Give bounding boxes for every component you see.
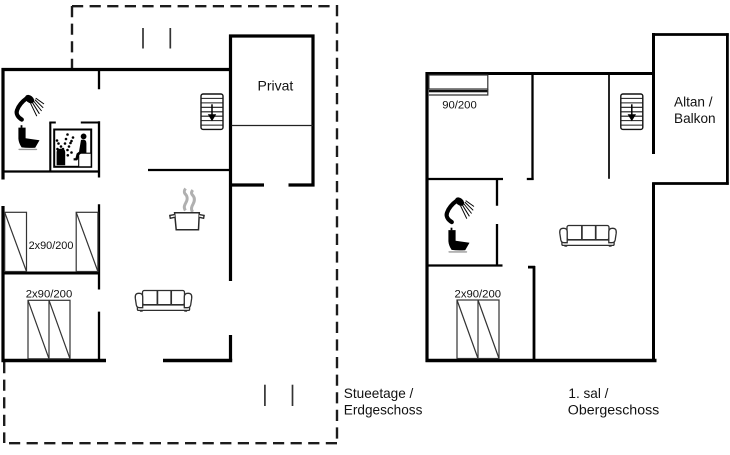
svg-text:Stueetage /: Stueetage /	[344, 386, 414, 401]
svg-text:Altan /: Altan /	[674, 95, 713, 110]
svg-text:Obergeschoss: Obergeschoss	[568, 403, 659, 419]
svg-text:1. sal /: 1. sal /	[568, 386, 608, 401]
svg-text:Balkon: Balkon	[674, 111, 716, 126]
svg-text:2x90/200: 2x90/200	[29, 240, 74, 252]
svg-text:2x90/200: 2x90/200	[26, 288, 72, 300]
svg-text:Erdgeschoss: Erdgeschoss	[344, 403, 423, 418]
svg-text:2x90/200: 2x90/200	[455, 288, 501, 300]
svg-text:Privat: Privat	[258, 77, 294, 93]
svg-text:90/200: 90/200	[442, 99, 477, 111]
